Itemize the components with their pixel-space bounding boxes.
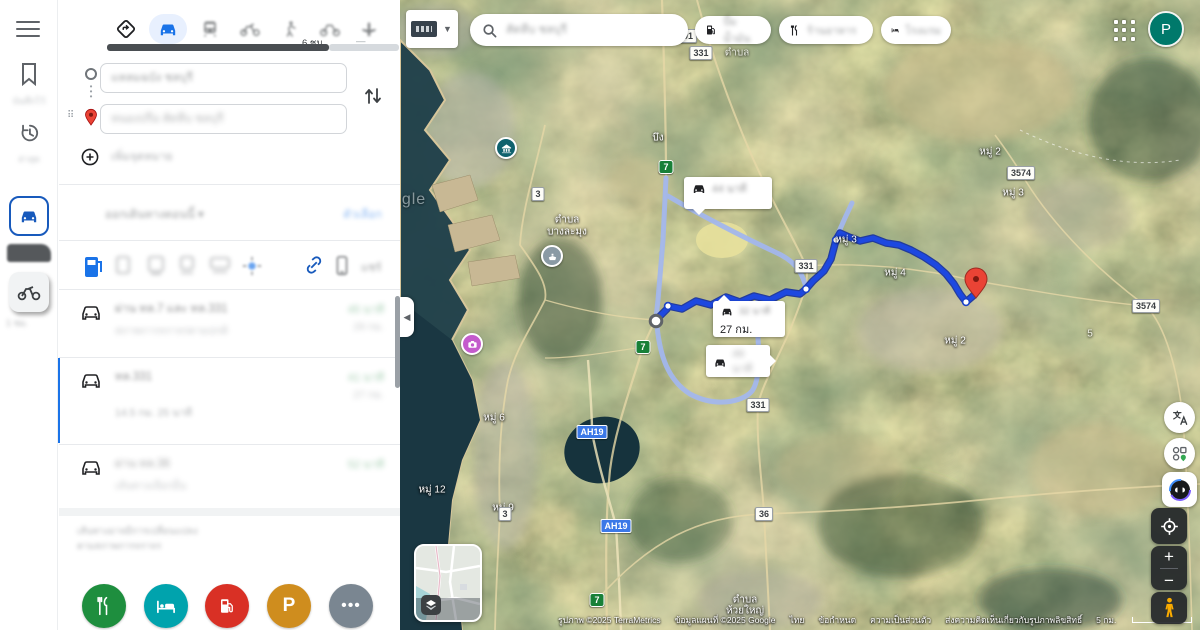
route-option-3[interactable]: ผ่าน ทล.36 เส้นทางเลือกอื่น 52 นาที (59, 445, 400, 506)
walk-icon (282, 19, 300, 39)
poi-ferry-icon[interactable] (541, 245, 563, 267)
car-icon (157, 20, 179, 38)
route-eta: 41 นาที (348, 368, 384, 386)
panel-scrollbar[interactable] (395, 296, 400, 388)
privacy-link[interactable]: ความเป็นส่วนตัว (870, 613, 931, 627)
pegman-icon (1163, 597, 1176, 619)
sidebar-item-saved[interactable]: บันทึกไว้ (0, 62, 58, 108)
departure-options-row: ออกเดินทางตอนนี้ ▾ ตัวเลือก (59, 200, 400, 230)
route-footnote: เส้นทางอาจมีการเปลี่ยนแปลง ตามสภาพการจรา… (77, 524, 277, 554)
imagery-credit: รูปภาพ ©2025 TerraMetrics (558, 613, 661, 627)
restaurant-icon (789, 24, 801, 37)
recent-shortcut-caption: 1 ชม. (6, 316, 52, 330)
chip-restaurants[interactable]: ร้านอาหาร (779, 16, 873, 44)
poi-attraction-icon[interactable] (461, 333, 483, 355)
place-label: บางละมุง (547, 225, 587, 240)
recent-directions-moto-chip[interactable] (9, 272, 49, 312)
best-travel-icon (115, 18, 137, 40)
route-callout-selected[interactable]: 32 นาที 27 กม. (713, 301, 785, 337)
more-dots-icon: ••• (341, 597, 361, 615)
section-divider (59, 508, 400, 516)
destination-pin-icon (84, 108, 98, 126)
origin-input[interactable]: แหลมฉบัง ชลบุรี (100, 63, 347, 93)
callout-time: 44 นาที (712, 180, 747, 197)
route-option-2-selected[interactable]: ทล.331 41 นาที 27 กม. 14.5 กม. 25 นาที (59, 358, 400, 443)
chevron-down-icon: ▼ (443, 24, 452, 34)
two-wheeler-icon (239, 20, 261, 38)
zoom-control: + − (1151, 546, 1187, 590)
callout-time: 49 นาที (732, 348, 763, 377)
place-label: หมู่ 3 (1002, 186, 1024, 201)
transit-icon (200, 19, 220, 39)
collapse-panel-button[interactable]: ◀ (400, 297, 414, 337)
ferry-option-icon[interactable] (179, 254, 195, 276)
plus-circle-icon (81, 148, 99, 166)
map-canvas[interactable]: gle 3701 331 3 3574 331 3574 331 36 3 7 … (400, 0, 1200, 630)
route-callout-alt-south[interactable]: 49 นาที (706, 345, 770, 377)
callout-tail (692, 208, 706, 222)
route-origin-dot (650, 315, 662, 327)
route-options-button[interactable]: ตัวเลือก (343, 206, 382, 224)
road-badge: 3 (531, 187, 544, 201)
route-distance: 29 กม. (353, 318, 384, 335)
mapdata-credit: ข้อมูลแผนที่ ©2025 Google (675, 613, 776, 627)
translate-icon (1171, 409, 1189, 427)
search-value: สัตหีบ ชลบุรี (506, 21, 567, 39)
places-icon (1171, 445, 1188, 462)
footnote-line2: ตามสภาพการจราจร (77, 539, 277, 554)
recent-directions-car-chip[interactable] (9, 196, 49, 236)
my-location-button[interactable] (1151, 508, 1187, 544)
copy-link-icon[interactable] (302, 254, 326, 276)
avatar-letter: P (1161, 21, 1171, 38)
gas-stations-button[interactable] (205, 584, 249, 628)
map-attribution: รูปภาพ ©2025 TerraMetrics ข้อมูลแผนที่ ©… (558, 613, 1192, 627)
road-badge: 331 (794, 259, 817, 273)
route-title: ผ่าน ทล.36 (115, 455, 325, 473)
route-eta: 45 นาที (348, 300, 384, 318)
more-categories-button[interactable]: ••• (329, 584, 373, 628)
mini-rail: บันทึกไว้ ล่าสุด 1 ชม. (0, 0, 58, 630)
mode-transit[interactable] (191, 14, 229, 44)
zoom-divider (1160, 568, 1178, 569)
callout-tail (717, 288, 731, 302)
road-badge: 3574 (1007, 166, 1035, 180)
destination-value: หนองปรือ สัตหีบ ชลบุรี (111, 110, 223, 128)
mode-two-wheeler[interactable] (231, 14, 269, 44)
place-label: หมู่ 2 (979, 145, 1001, 160)
toll-option-icon[interactable] (115, 254, 131, 276)
sidebar-item-recents[interactable]: ล่าสุด (0, 122, 58, 166)
car-icon (79, 370, 103, 390)
route-detail-chips: 14.5 กม. 25 นาที (115, 404, 192, 421)
mode-best-travel[interactable] (107, 14, 145, 44)
place-label: หมู่ 6 (483, 411, 505, 426)
gas-pump-icon (705, 23, 717, 37)
send-to-phone-icon[interactable] (331, 254, 353, 278)
highway-badge: AH19 (576, 425, 607, 439)
zoom-in-button[interactable]: + (1164, 548, 1174, 565)
place-label: หมู่ 12 (418, 483, 445, 498)
car-icon (79, 457, 103, 477)
motorway-badge: 7 (658, 160, 673, 174)
car-icon (691, 182, 707, 195)
travel-mode-bar: 6 ชม. — (59, 10, 400, 48)
swap-origin-destination-button[interactable] (362, 84, 386, 108)
car-icon (18, 207, 40, 225)
redacted-times-bar-light (329, 44, 399, 51)
road-badge: 36 (755, 507, 773, 521)
chevron-left-icon: ◀ (404, 312, 411, 323)
restaurants-button[interactable] (82, 584, 126, 628)
leave-now-dropdown[interactable]: ออกเดินทางตอนนี้ ▾ (105, 206, 204, 224)
place-label: 5 (1087, 329, 1093, 340)
place-label: ตำบล (725, 46, 750, 61)
motorway-badge: 7 (635, 340, 650, 354)
add-destination-button[interactable]: เพิ่มจุดหมาย (81, 148, 173, 166)
gemini-ask-button[interactable] (1162, 472, 1197, 507)
layers-icon[interactable] (421, 595, 441, 615)
saved-label: บันทึกไว้ (0, 94, 58, 108)
translate-button[interactable] (1164, 402, 1195, 433)
route-subtitle: สภาพการจราจรตามปกติ (115, 322, 315, 339)
car-icon (79, 302, 103, 322)
traffic-option-icon[interactable] (209, 254, 231, 276)
history-icon (18, 122, 40, 144)
hotel-bed-icon (891, 24, 899, 36)
callout-tail (769, 354, 783, 368)
share-button[interactable]: แชร์ (361, 258, 381, 276)
terms-link[interactable]: ข้อกำหนด (818, 613, 856, 627)
car-icon (713, 356, 727, 369)
road-badge: 3 (498, 507, 511, 521)
fuel-efficiency-icon[interactable] (82, 254, 104, 280)
route-subtitle: เส้นทางเลือกอื่น (115, 477, 365, 494)
route-eta: 52 นาที (348, 455, 384, 473)
recent-vehicle-thumbnail[interactable] (7, 244, 51, 262)
add-destination-label: เพิ่มจุดหมาย (111, 148, 173, 166)
navigation-option-icon[interactable] (241, 254, 263, 278)
scale-label: 5 กม. (1096, 613, 1116, 627)
restaurant-icon (94, 596, 114, 616)
origin-circle-icon (85, 68, 97, 80)
mode-driving[interactable] (149, 14, 187, 44)
place-label: หมู่ 4 (884, 266, 906, 281)
pegman-button[interactable] (1151, 592, 1187, 624)
place-label: หมู่ 3 (835, 233, 857, 248)
google-watermark: gle (402, 191, 426, 209)
place-label: หมู่ 2 (944, 334, 966, 349)
map-type-selector[interactable]: ▼ (406, 10, 458, 48)
hotel-bed-icon (155, 597, 177, 615)
map-thumbnail-icon (411, 21, 437, 37)
route-callout-alt-north[interactable]: 44 นาที (684, 177, 772, 209)
gas-pump-icon (218, 596, 236, 616)
parking-letter: P (283, 595, 296, 617)
route-option-1[interactable]: ผ่าน ทล.7 และ ทล.331 สภาพการจราจรตามปกติ… (59, 290, 400, 356)
car-icon (720, 306, 734, 317)
directions-panel: 6 ชม. — ••• ⠿ แหลมฉบัง ชลบุรี หนองปรือ ส… (59, 0, 400, 630)
chip-label: ปั๊มน้ำมัน (723, 13, 761, 47)
my-location-icon (1160, 517, 1179, 536)
account-avatar[interactable]: P (1148, 11, 1184, 47)
waypoint-icons: ••• (81, 62, 101, 142)
poi-museum-icon[interactable] (495, 137, 517, 159)
motorcycle-icon (17, 282, 41, 302)
route-distance: 27 กม. (353, 386, 384, 403)
drag-handle-icon[interactable]: ⠿ (67, 110, 75, 121)
destination-input[interactable]: หนองปรือ สัตหีบ ชลบุรี (100, 104, 347, 134)
zoom-out-button[interactable]: − (1164, 572, 1174, 589)
chip-hotels[interactable]: โรงแรม (881, 16, 951, 44)
bookmark-icon (19, 62, 39, 86)
parking-button[interactable]: P (267, 584, 311, 628)
minimap-toggle[interactable] (414, 544, 482, 622)
place-label: บึง (652, 131, 663, 146)
road-badge: 331 (746, 398, 769, 412)
gemini-icon (1168, 478, 1192, 502)
route-title: ผ่าน ทล.7 และ ทล.331 (115, 300, 325, 318)
map-search-input[interactable]: สัตหีบ ชลบุรี (470, 14, 688, 46)
satellite-terrain (400, 0, 1200, 630)
feedback-link[interactable]: ส่งความคิดเห็นเกี่ยวกับรูปภาพลิขสิทธิ์ (945, 613, 1082, 627)
menu-icon[interactable] (16, 21, 40, 39)
origin-value: แหลมฉบัง ชลบุรี (111, 69, 193, 87)
recents-label: ล่าสุด (0, 152, 58, 166)
google-apps-grid-icon[interactable] (1112, 18, 1138, 44)
chip-gas-stations[interactable]: ปั๊มน้ำมัน (695, 16, 771, 44)
road-badge: 3574 (1132, 299, 1160, 313)
chip-label: ร้านอาหาร (807, 22, 856, 39)
route-toolbar: แชร์ (59, 246, 400, 288)
waypoint-dots: ••• (81, 84, 101, 99)
callout-time: 32 นาที (739, 304, 770, 319)
google-maps-app: บันทึกไว้ ล่าสุด 1 ชม. (0, 0, 1200, 630)
highway-option-icon[interactable] (147, 254, 165, 276)
footnote-line1: เส้นทางอาจมีการเปลี่ยนแปลง (77, 524, 277, 539)
search-icon (482, 23, 497, 38)
road-badge: 331 (689, 46, 712, 60)
redacted-times-bar (107, 44, 329, 51)
explore-places-button[interactable] (1164, 438, 1195, 469)
motorway-badge: 7 (589, 593, 604, 607)
route-title: ทล.331 (115, 368, 225, 386)
place-category-buttons: P ••• (59, 584, 400, 630)
callout-distance: 27 กม. (720, 320, 778, 338)
hotels-button[interactable] (144, 584, 188, 628)
highway-badge: AH19 (600, 519, 631, 533)
country-link[interactable]: ไทย (790, 613, 805, 627)
chip-label: โรงแรม (905, 22, 941, 39)
